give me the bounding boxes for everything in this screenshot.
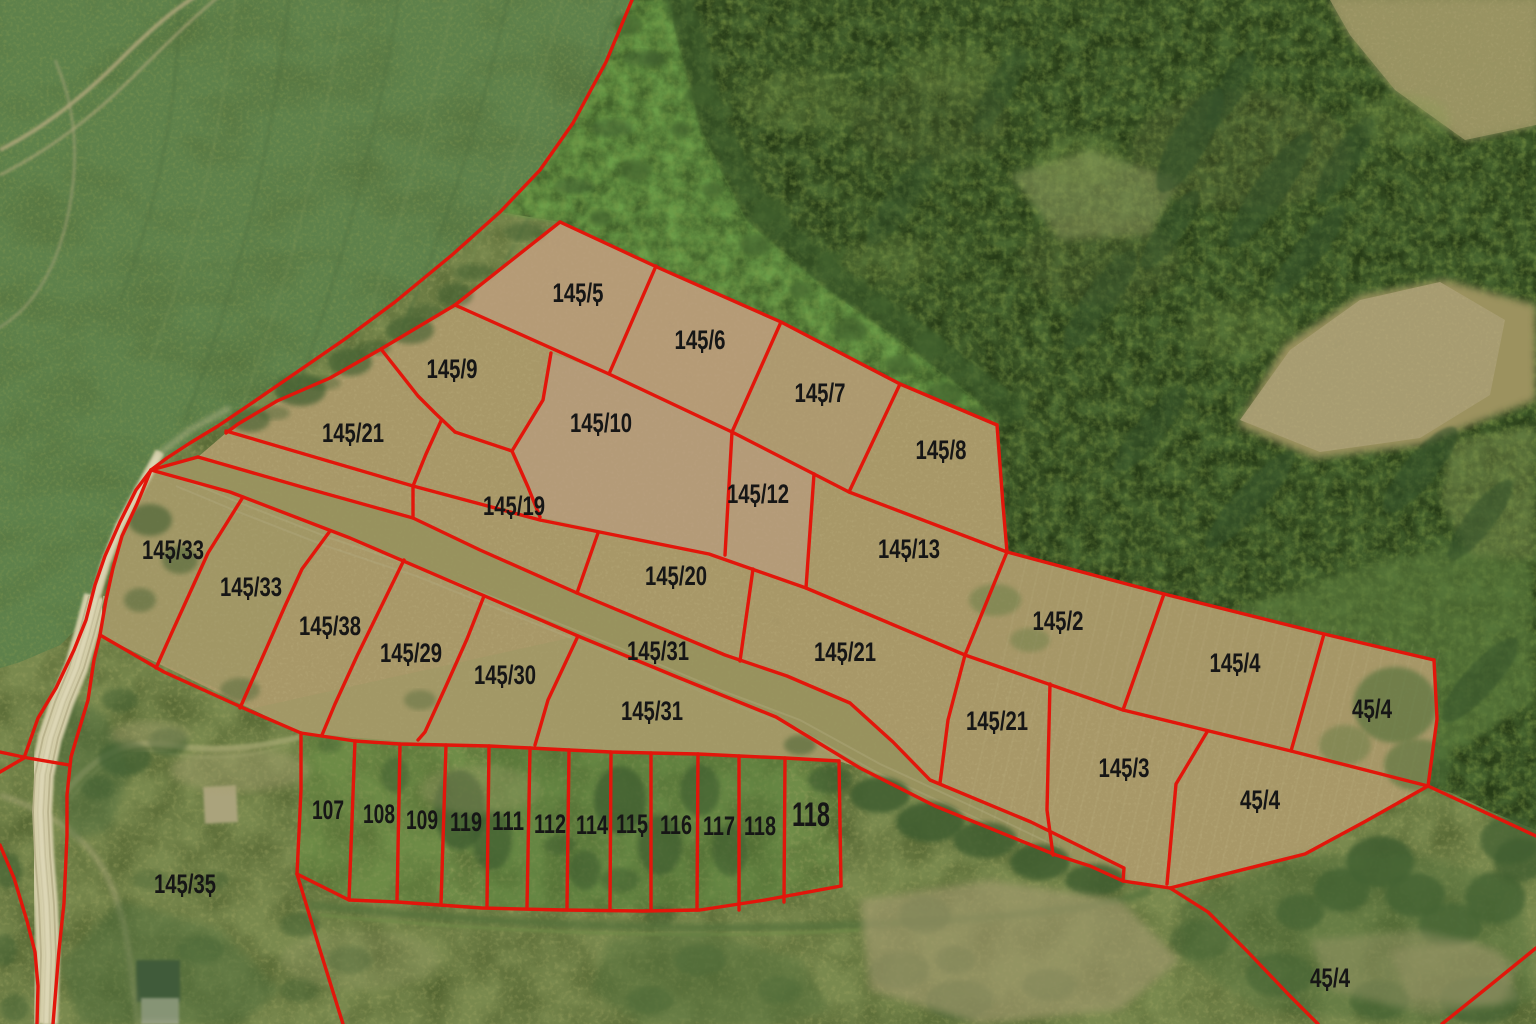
svg-text:118: 118	[792, 796, 830, 834]
svg-text:145/3: 145/3	[1099, 753, 1150, 783]
svg-text:145/33: 145/33	[220, 572, 282, 602]
svg-text:108: 108	[363, 799, 395, 829]
svg-text:107: 107	[312, 795, 344, 825]
svg-text:145/29: 145/29	[380, 638, 442, 668]
svg-text:109: 109	[406, 805, 438, 835]
svg-text:145/21: 145/21	[814, 637, 876, 667]
svg-text:145/7: 145/7	[795, 378, 846, 408]
svg-text:145/13: 145/13	[878, 534, 940, 564]
svg-text:111: 111	[492, 806, 524, 836]
svg-text:145/31: 145/31	[627, 636, 689, 666]
svg-text:145/4: 145/4	[1210, 648, 1261, 678]
svg-text:114: 114	[576, 810, 608, 840]
svg-text:112: 112	[534, 809, 566, 839]
svg-text:145/19: 145/19	[483, 491, 545, 521]
svg-text:145/21: 145/21	[966, 706, 1028, 736]
svg-text:145/33: 145/33	[142, 535, 204, 565]
svg-text:145/6: 145/6	[675, 325, 726, 355]
svg-text:145/2: 145/2	[1033, 606, 1084, 636]
svg-text:45/4: 45/4	[1240, 785, 1280, 815]
svg-text:118: 118	[744, 811, 776, 841]
svg-text:145/31: 145/31	[621, 696, 683, 726]
svg-text:145/35: 145/35	[154, 869, 216, 899]
svg-text:145/9: 145/9	[427, 354, 478, 384]
svg-text:145/5: 145/5	[553, 278, 604, 308]
svg-text:145/20: 145/20	[645, 561, 707, 591]
svg-text:145/30: 145/30	[474, 660, 536, 690]
svg-text:145/10: 145/10	[570, 408, 632, 438]
svg-text:145/12: 145/12	[727, 479, 789, 509]
svg-text:116: 116	[660, 810, 692, 840]
svg-text:117: 117	[703, 811, 735, 841]
svg-text:45/4: 45/4	[1310, 963, 1350, 993]
svg-text:145/21: 145/21	[322, 418, 384, 448]
svg-text:145/38: 145/38	[299, 611, 361, 641]
svg-text:119: 119	[450, 807, 482, 837]
svg-text:45/4: 45/4	[1352, 694, 1392, 724]
svg-text:145/8: 145/8	[916, 435, 967, 465]
